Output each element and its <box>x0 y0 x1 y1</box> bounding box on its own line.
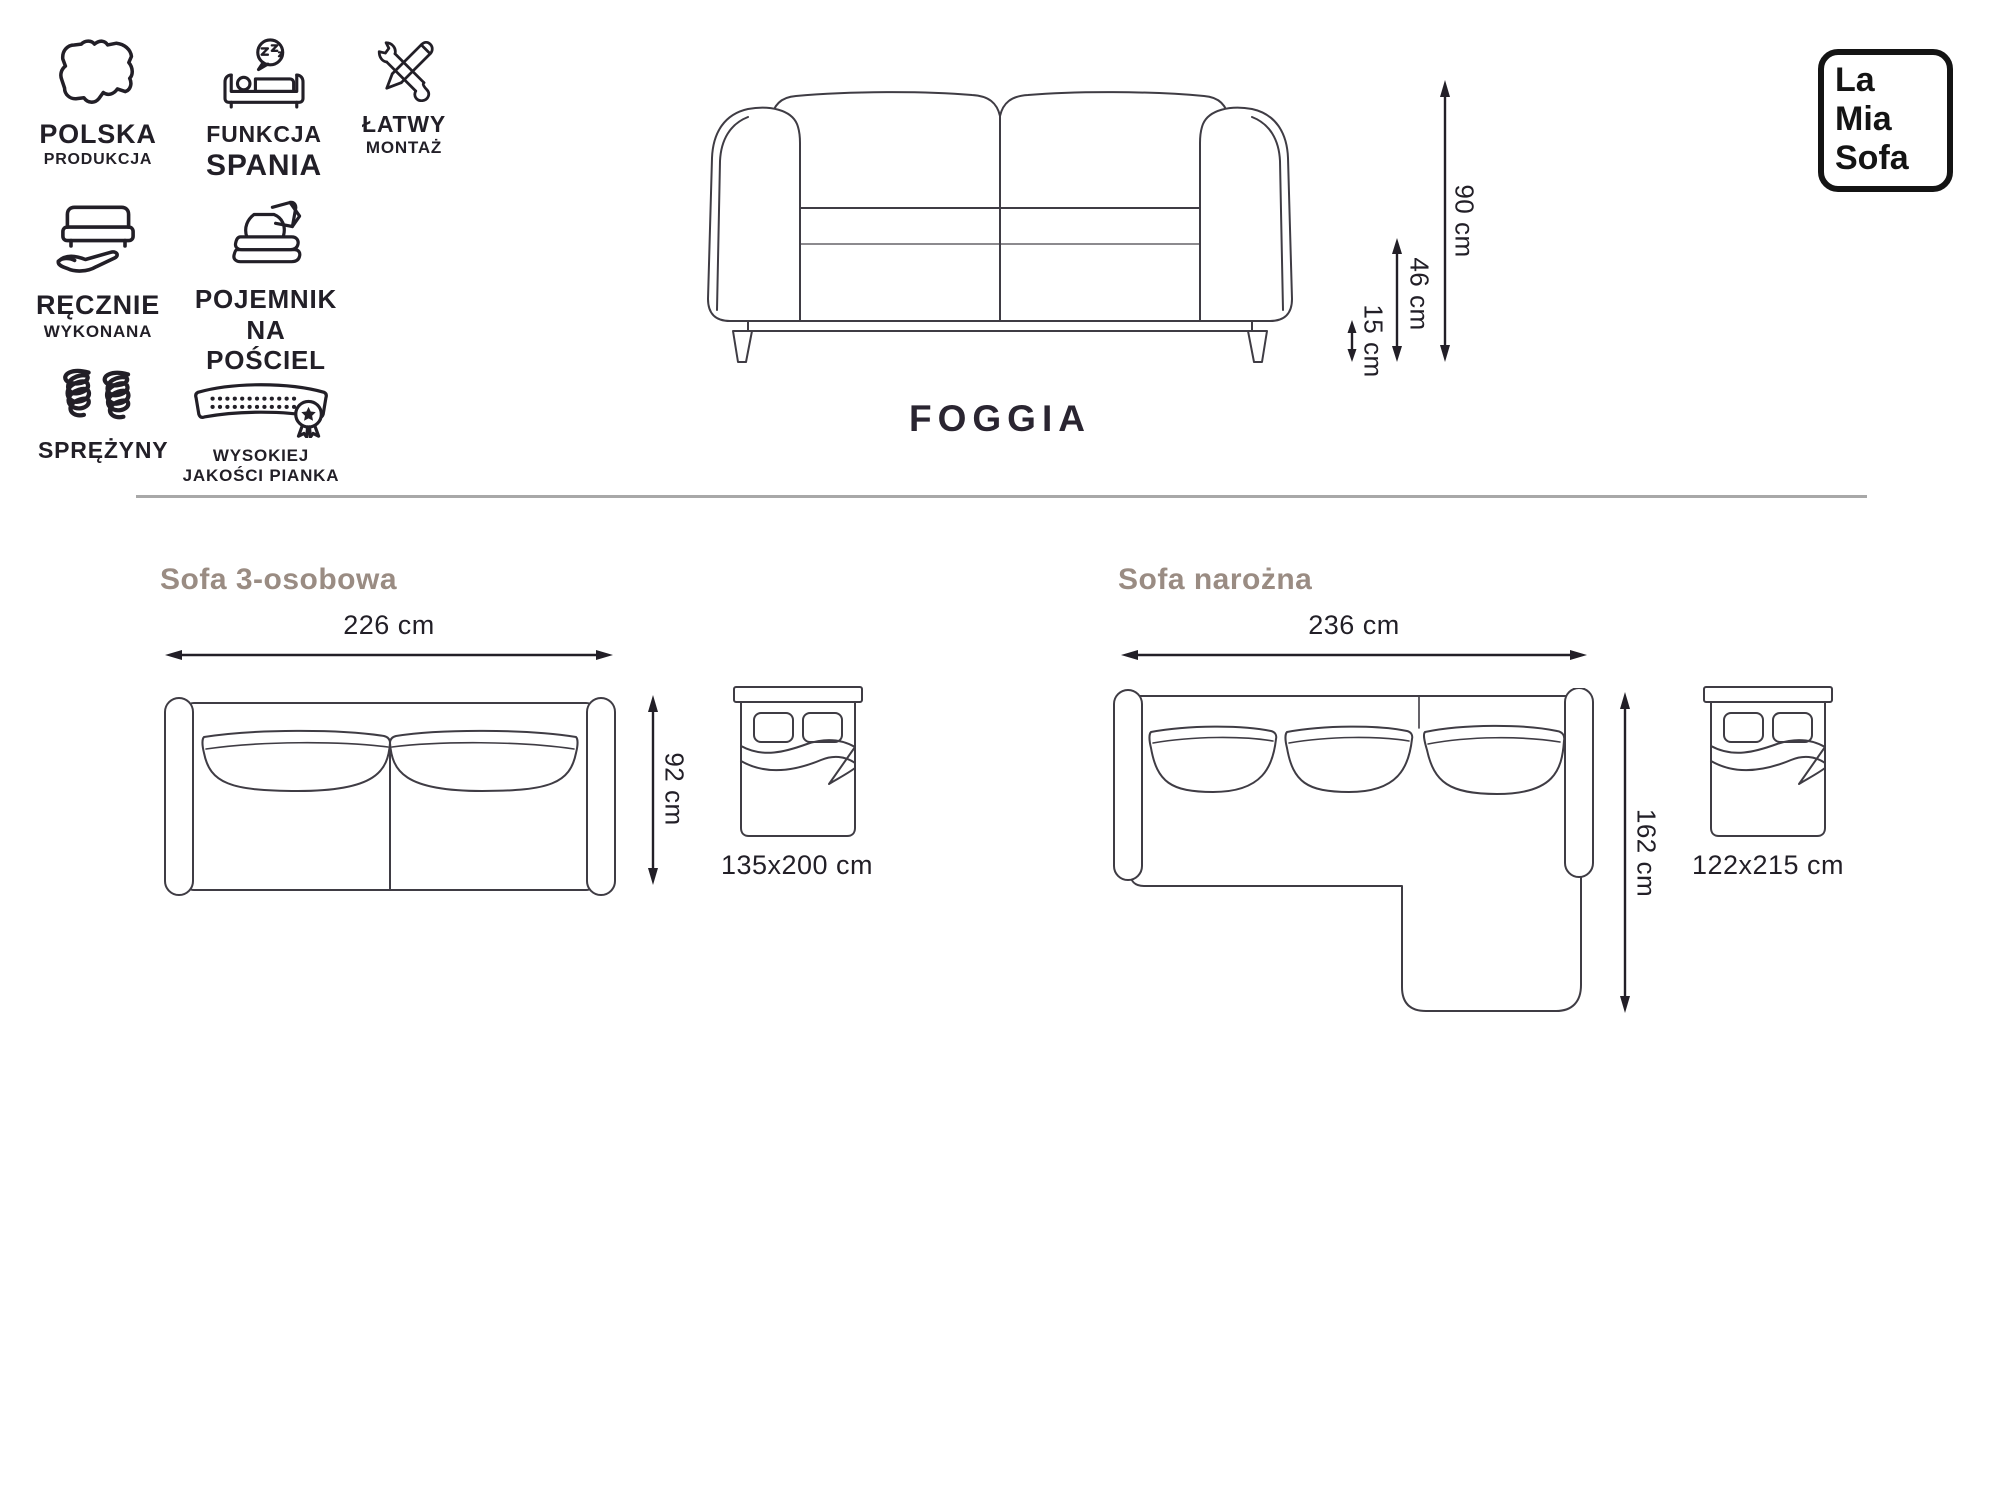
corner-bed-size-label: 122x215 cm <box>1643 850 1893 881</box>
feature-sublabel: SPANIA <box>196 148 332 183</box>
section-title-sofa-3-osobowa: Sofa 3-osobowa <box>160 563 397 597</box>
sofa3-width-label: 226 cm <box>239 610 539 641</box>
seat-height-label: 46 cm <box>1404 257 1435 330</box>
poland-map-icon <box>54 36 142 112</box>
sofa3-bed-icon <box>733 684 863 842</box>
feature-sublabel: JAKOŚCI PIANKA <box>176 466 346 486</box>
feature-funkcja-spania: FUNKCJA SPANIA <box>196 36 332 184</box>
sleep-function-icon <box>221 36 307 114</box>
corner-width-label: 236 cm <box>1204 610 1504 641</box>
logo-line-2: Mia <box>1835 100 1947 139</box>
feature-latwy-montaz: ŁATWY MONTAŻ <box>352 40 456 158</box>
feature-label: POJEMNIK <box>190 284 342 315</box>
feature-label: WYSOKIEJ <box>176 446 346 466</box>
feature-sublabel: MONTAŻ <box>352 138 456 158</box>
product-title: FOGGIA <box>850 398 1150 440</box>
feature-pojemnik-na-posciel: POJEMNIK NA POŚCIEL <box>190 200 342 376</box>
divider-line <box>136 495 1867 498</box>
springs-icon <box>60 366 136 428</box>
feature-label: ŁATWY <box>352 111 456 138</box>
spec-sheet: POLSKA PRODUKCJA FUNKCJA SPANIA ŁATWY <box>0 0 2000 1500</box>
feature-sprezyny: SPRĘŻYNY <box>38 366 158 464</box>
feature-label: SPRĘŻYNY <box>38 437 158 464</box>
feature-recznie-wykonana: RĘCZNIE WYKONANA <box>34 200 162 342</box>
feature-polska-produkcja: POLSKA PRODUKCJA <box>36 36 160 170</box>
sofa3-top-view-drawing <box>160 697 620 902</box>
leg-height-label: 15 cm <box>1358 304 1389 377</box>
logo-line-1: La <box>1835 61 1947 100</box>
corner-bed-icon <box>1703 684 1833 842</box>
brand-logo: La Mia Sofa <box>1818 49 1953 192</box>
bedding-container-icon <box>226 200 306 277</box>
corner-sofa-top-view-drawing <box>1113 688 1595 1020</box>
foam-icon <box>192 374 330 438</box>
feature-sublabel: PRODUKCJA <box>36 151 160 170</box>
sofa3-width-arrow <box>165 646 613 664</box>
feature-label: RĘCZNIE <box>34 290 162 322</box>
corner-width-arrow <box>1121 646 1587 664</box>
feature-label: FUNKCJA <box>196 121 332 148</box>
sofa3-depth-label: 92 cm <box>659 752 690 825</box>
section-title-sofa-narozna: Sofa narożna <box>1118 563 1312 597</box>
handmade-icon <box>53 200 143 283</box>
tools-icon <box>373 40 435 102</box>
total-height-label: 90 cm <box>1449 184 1480 257</box>
feature-sublabel: WYKONANA <box>34 322 162 342</box>
sofa3-bed-size-label: 135x200 cm <box>672 850 922 881</box>
feature-sublabel: NA POŚCIEL <box>190 315 342 376</box>
sofa-front-view-drawing <box>700 58 1300 364</box>
logo-line-3: Sofa <box>1835 139 1947 178</box>
feature-wysokiej-jakosci-pianka: WYSOKIEJ JAKOŚCI PIANKA <box>176 374 346 486</box>
feature-label: POLSKA <box>36 119 160 151</box>
